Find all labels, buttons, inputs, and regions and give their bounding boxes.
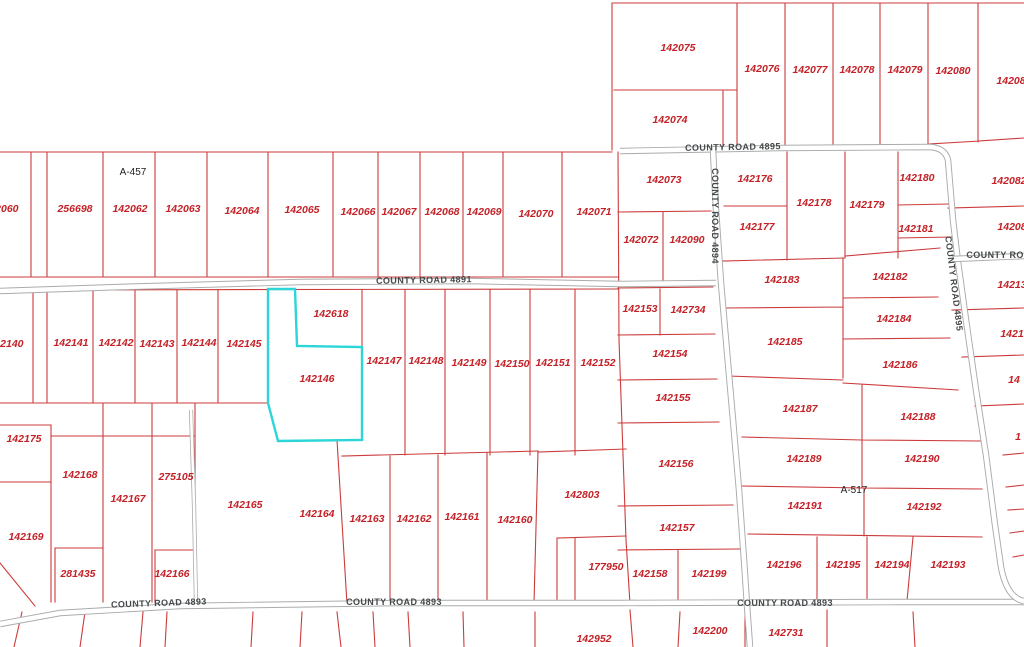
parcel-label-14208[interactable]: 14208 [997,221,1024,233]
parcel-label-142183[interactable]: 142183 [764,274,799,286]
parcel-label-142065[interactable]: 142065 [284,204,319,216]
road-label: COUNTY ROAD 4895 [685,141,781,153]
parcel-label-142077[interactable]: 142077 [792,64,828,76]
parcel-label-142193[interactable]: 142193 [930,559,965,571]
parcel-label-142164[interactable]: 142164 [299,508,334,520]
road-label: COUNTY ROAD [966,250,1024,260]
parcel-label-142189[interactable]: 142189 [786,453,821,465]
parcel-label-142148[interactable]: 142148 [408,355,443,367]
parcel-label-256698[interactable]: 256698 [56,203,92,215]
parcel-label-142163[interactable]: 142163 [349,513,384,525]
parcel-label-142154[interactable]: 142154 [652,348,687,360]
parcel-label-142184[interactable]: 142184 [876,313,911,325]
parcel-label-142071[interactable]: 142071 [576,206,611,218]
survey-label-A-457: A-457 [120,167,147,178]
parcel-label-142169[interactable]: 142169 [8,531,43,543]
parcel-label-142150[interactable]: 142150 [494,358,529,370]
parcel-label-142067[interactable]: 142067 [381,206,417,218]
parcel-label-142147[interactable]: 142147 [366,355,402,367]
parcel-label-142196[interactable]: 142196 [766,559,801,571]
parcel-label-142090[interactable]: 142090 [669,234,704,246]
parcel-label-1421[interactable]: 1421 [1000,328,1024,340]
parcel-label-142190[interactable]: 142190 [904,453,939,465]
parcel-label-142155[interactable]: 142155 [655,392,690,404]
parcel-label-142142[interactable]: 142142 [98,337,133,349]
parcel-label-142158[interactable]: 142158 [632,568,667,580]
parcel-label-142074[interactable]: 142074 [652,114,687,126]
parcel-label-142069[interactable]: 142069 [466,206,501,218]
parcel-label-142952[interactable]: 142952 [576,633,611,645]
parcel-label-142076[interactable]: 142076 [744,63,779,75]
parcel-label-142195[interactable]: 142195 [825,559,860,571]
road-label: COUNTY ROAD 4893 [346,597,442,607]
parcel-label-142072[interactable]: 142072 [623,234,658,246]
parcel-label-142073[interactable]: 142073 [646,174,681,186]
parcel-label-142165[interactable]: 142165 [227,499,262,511]
parcel-label-142156[interactable]: 142156 [658,458,693,470]
parcel-label-142200[interactable]: 142200 [692,625,727,637]
parcel-label-142149[interactable]: 142149 [451,357,486,369]
parcel-label-281435[interactable]: 281435 [59,568,95,580]
parcel-label-142145[interactable]: 142145 [226,338,261,350]
parcel-label-142070[interactable]: 142070 [518,208,553,220]
parcel-label-142803[interactable]: 142803 [564,489,599,501]
parcel-label-142618[interactable]: 142618 [313,308,348,320]
parcel-label-142188[interactable]: 142188 [900,411,935,423]
parcel-label-142191[interactable]: 142191 [787,500,822,512]
parcel-label-142060[interactable]: 142060 [0,203,19,215]
parcel-label-142168[interactable]: 142168 [62,469,97,481]
parcel-label-177950[interactable]: 177950 [588,561,623,573]
parcel-label-142199[interactable]: 142199 [691,568,726,580]
parcel-label-142161[interactable]: 142161 [444,511,479,523]
parcel-label-142143[interactable]: 142143 [139,338,174,350]
parcel-label-14208[interactable]: 14208 [996,75,1024,87]
map-labels: 1420602566981420621420631420641420651420… [0,42,1024,645]
parcel-label-142177[interactable]: 142177 [739,221,775,233]
parcel-label-142144[interactable]: 142144 [181,337,216,349]
parcel-boundary-lines [0,3,1024,647]
parcel-label-142176[interactable]: 142176 [737,173,772,185]
parcel-label-142731[interactable]: 142731 [768,627,803,639]
parcel-label-142187[interactable]: 142187 [782,403,818,415]
parcel-label-142141[interactable]: 142141 [53,337,88,349]
parcel-label-275105[interactable]: 275105 [157,471,193,483]
parcel-label-142080[interactable]: 142080 [935,65,970,77]
road-label: COUNTY ROAD 4894 [710,168,720,264]
parcel-label-142167[interactable]: 142167 [110,493,146,505]
parcel-label-142162[interactable]: 142162 [396,513,431,525]
parcel-label-1[interactable]: 1 [1015,431,1021,443]
parcel-label-142064[interactable]: 142064 [224,205,259,217]
parcel-label-142078[interactable]: 142078 [839,64,874,76]
parcel-label-142079[interactable]: 142079 [887,64,922,76]
parcel-label-142194[interactable]: 142194 [874,559,909,571]
road-label: COUNTY ROAD 4891 [376,274,472,286]
survey-label-A-517: A-517 [841,485,868,496]
parcel-label-142075[interactable]: 142075 [660,42,695,54]
parcel-label-142068[interactable]: 142068 [424,206,459,218]
parcel-label-142185[interactable]: 142185 [767,336,802,348]
parcel-label-142157[interactable]: 142157 [659,522,695,534]
parcel-label-142152[interactable]: 142152 [580,357,615,369]
parcel-map-svg: 1420602566981420621420631420641420651420… [0,0,1024,647]
road-label: COUNTY ROAD 4893 [737,598,833,608]
parcel-label-142166[interactable]: 142166 [154,568,189,580]
parcel-label-142186[interactable]: 142186 [882,359,917,371]
parcel-label-142066[interactable]: 142066 [340,206,375,218]
parcel-label-142063[interactable]: 142063 [165,203,200,215]
parcel-label-142178[interactable]: 142178 [796,197,831,209]
parcel-label-142062[interactable]: 142062 [112,203,147,215]
parcel-label-142175[interactable]: 142175 [6,433,41,445]
parcel-label-142082[interactable]: 142082 [991,175,1024,187]
parcel-label-142140[interactable]: 142140 [0,338,24,350]
parcel-label-142153[interactable]: 142153 [622,303,657,315]
parcel-label-142160[interactable]: 142160 [497,514,532,526]
parcel-label-142182[interactable]: 142182 [872,271,907,283]
parcel-label-142734[interactable]: 142734 [670,304,705,316]
parcel-label-142179[interactable]: 142179 [849,199,884,211]
parcel-label-142151[interactable]: 142151 [535,357,570,369]
map-canvas[interactable]: 1420602566981420621420631420641420651420… [0,0,1024,647]
parcel-label-142180[interactable]: 142180 [899,172,934,184]
parcel-label-142181[interactable]: 142181 [898,223,933,235]
parcel-label-14[interactable]: 14 [1008,374,1020,386]
parcel-label-142146[interactable]: 142146 [299,373,334,385]
parcel-label-14213[interactable]: 14213 [997,279,1024,291]
parcel-label-142192[interactable]: 142192 [906,501,941,513]
